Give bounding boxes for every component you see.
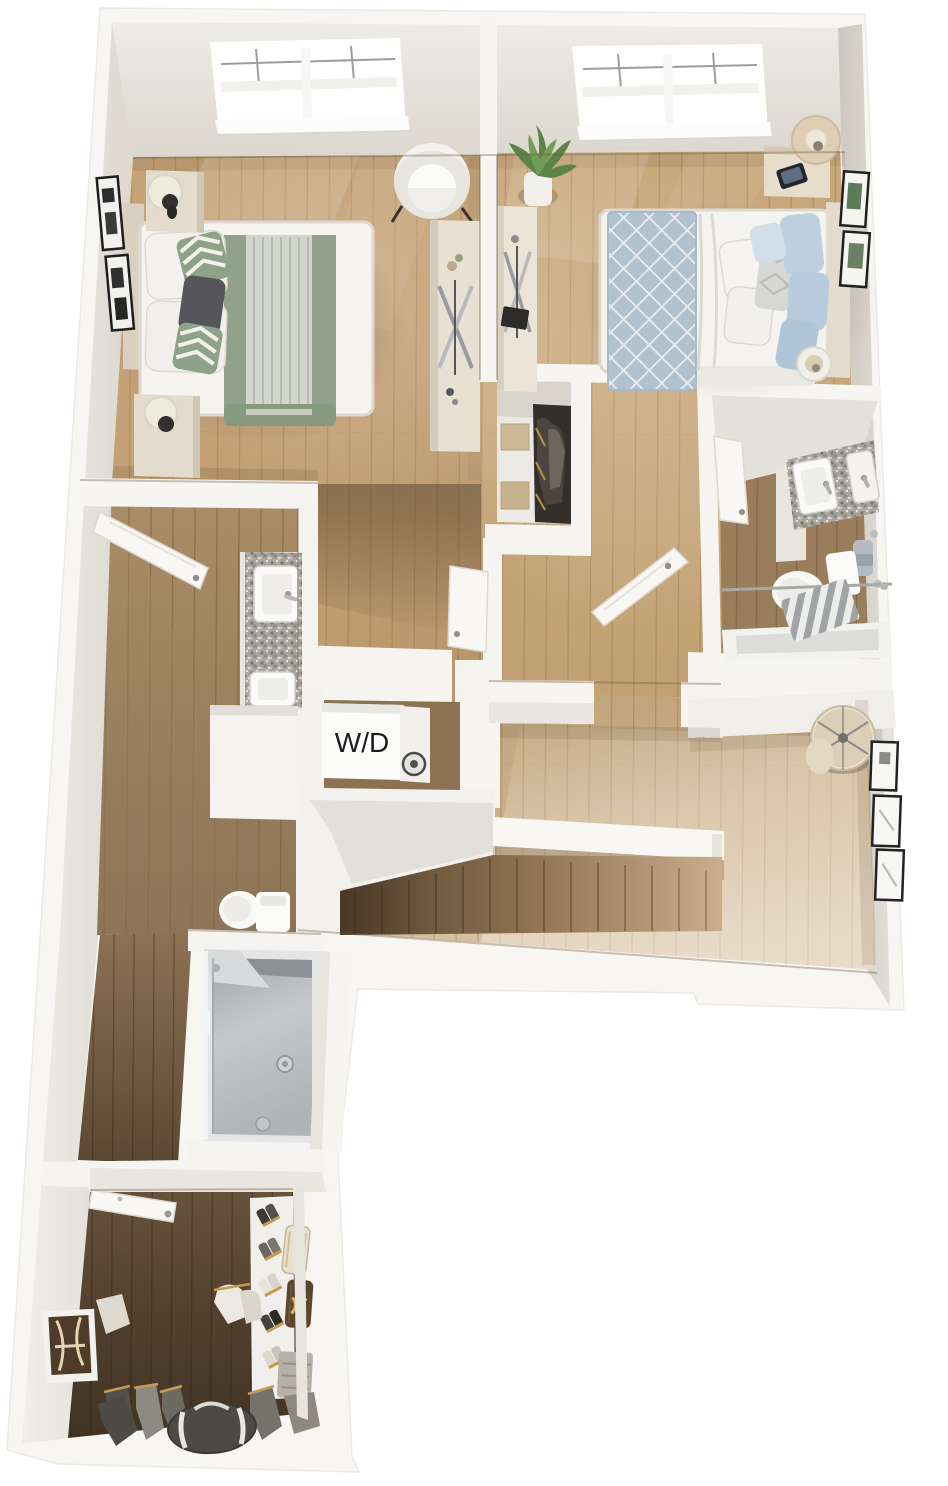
svg-text:W/D: W/D [335,727,389,758]
